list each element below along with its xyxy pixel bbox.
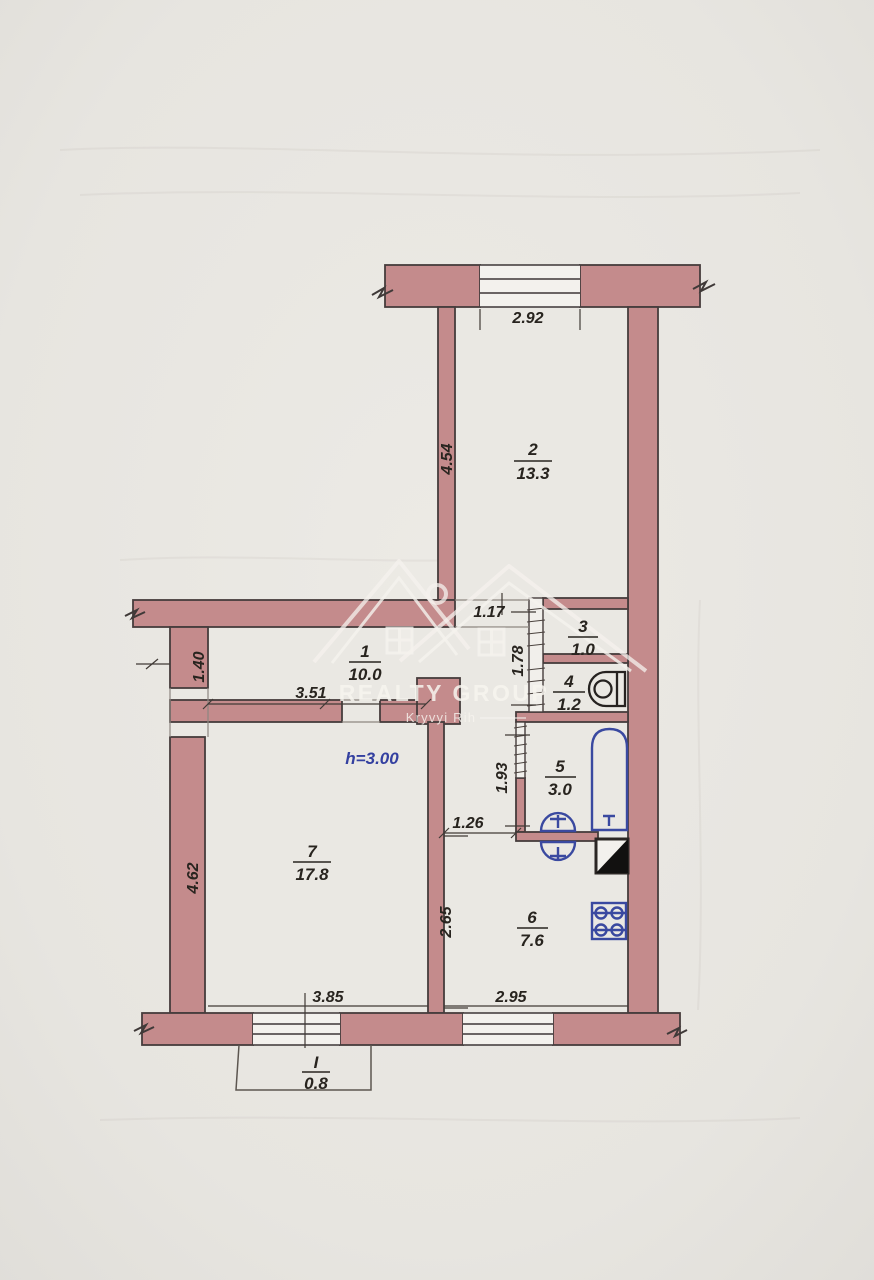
watermark-city: Kryvyi Rih xyxy=(406,710,477,725)
wall-top-right xyxy=(580,265,700,307)
dim-room2-doorway: 1.17 xyxy=(473,604,505,621)
ceiling-height-note: h=3.00 xyxy=(345,749,399,768)
room-4-number: 4 xyxy=(563,672,574,691)
dim-kitchen-width: 2.95 xyxy=(494,989,527,1006)
wall-room5-room6-divider xyxy=(516,832,598,841)
room-2-area: 13.3 xyxy=(516,464,550,483)
room-6-number: 6 xyxy=(527,908,537,927)
window-living xyxy=(253,1013,340,1045)
partition-bathroom-door xyxy=(516,722,525,778)
vent-shaft-icon xyxy=(596,839,628,873)
room-5-number: 5 xyxy=(555,757,565,776)
balcony-area: 0.8 xyxy=(304,1074,328,1093)
dim-entry-wall: 1.40 xyxy=(191,651,208,682)
dim-corridor-width: 1.26 xyxy=(452,815,483,832)
room-4-area: 1.2 xyxy=(557,695,581,714)
dim-bathroom-depth: 1.93 xyxy=(494,762,511,793)
dim-room2-depth: 4.54 xyxy=(439,443,456,475)
wall-room5-left-lower xyxy=(516,778,525,832)
wall-hall-room7-left xyxy=(170,700,342,722)
room-2-number: 2 xyxy=(527,440,538,459)
room-7-number: 7 xyxy=(307,842,318,861)
dim-kitchen-depth: 2.65 xyxy=(438,905,455,938)
room-1-number: 1 xyxy=(360,642,369,661)
dim-top-window: 2.92 xyxy=(511,310,543,327)
room-3-number: 3 xyxy=(578,617,588,636)
wall-room7-kitchen-divider xyxy=(428,722,444,1013)
room-5-area: 3.0 xyxy=(548,780,572,799)
wall-bottom-right xyxy=(553,1013,680,1045)
wall-bottom-middle xyxy=(340,1013,463,1045)
floorplan-photo: REALTY GROUP Kryvyi Rih 1 10.0 2 13.3 3 … xyxy=(0,0,874,1280)
dim-closet-depth: 1.78 xyxy=(510,645,527,676)
window-kitchen xyxy=(463,1013,553,1045)
room-3-area: 1.0 xyxy=(571,640,595,659)
dim-hallway-width: 3.51 xyxy=(295,685,326,702)
floorplan-svg: REALTY GROUP Kryvyi Rih 1 10.0 2 13.3 3 … xyxy=(0,0,874,1280)
window-top xyxy=(480,265,580,307)
wall-bottom-left xyxy=(142,1013,253,1045)
room-7-area: 17.8 xyxy=(295,865,329,884)
dim-living-depth: 4.62 xyxy=(185,862,202,894)
wall-top-left xyxy=(385,265,480,307)
room-1-area: 10.0 xyxy=(348,665,382,684)
room-6-area: 7.6 xyxy=(520,931,544,950)
dim-living-width: 3.85 xyxy=(312,989,344,1006)
wall-hall-top xyxy=(133,600,455,627)
